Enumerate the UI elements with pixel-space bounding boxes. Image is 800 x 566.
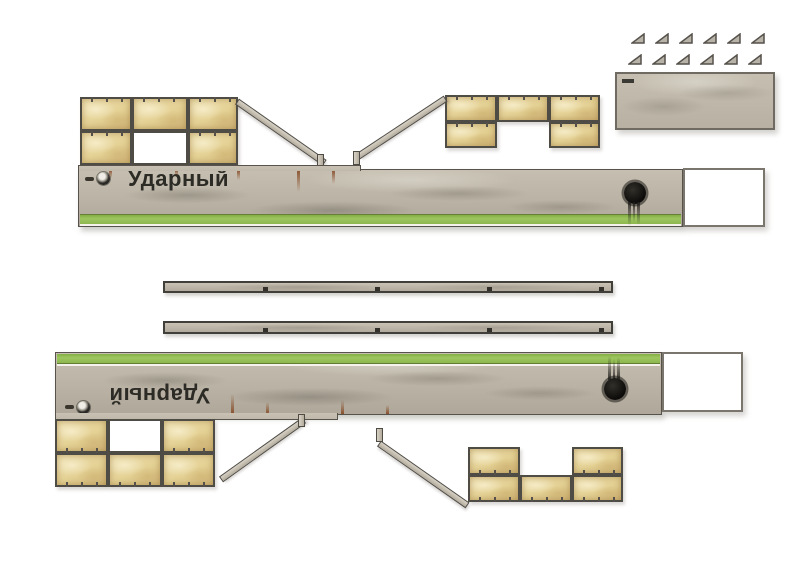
sandbag-panel (520, 475, 572, 502)
papercraft-sheet: Ударный Ударный (0, 0, 800, 566)
glue-tab (662, 352, 743, 412)
plate-mark (622, 79, 634, 83)
sandbag-panel (549, 122, 600, 148)
ramp-foot (298, 414, 305, 427)
vessel-name-label: Ударный (109, 382, 210, 408)
glue-triangle (751, 33, 765, 44)
hull-plate: Ударный (55, 352, 662, 415)
rust-streak (297, 170, 300, 192)
glue-triangle (700, 54, 714, 65)
rust-streak (386, 405, 389, 414)
ramp-strip-bottom-left (219, 417, 306, 482)
rust-streak (109, 170, 112, 178)
glue-triangle (703, 33, 717, 44)
sandbag-panel (572, 475, 623, 502)
sandbag-wall-top-left (80, 97, 238, 165)
sandbag-panel (132, 97, 188, 131)
drip-streak (628, 202, 631, 226)
sandbag-panel (188, 131, 238, 165)
sandbag-panel (55, 453, 108, 487)
waterline-stripe (80, 214, 681, 224)
ramp-foot (353, 151, 360, 165)
sandbag-panel (80, 131, 132, 165)
sandbag-panel (468, 447, 520, 475)
sandbag-panel-empty (108, 419, 162, 453)
sandbag-panel (468, 475, 520, 502)
sandbag-panel (445, 122, 497, 148)
sandbag-wall-top-right (445, 95, 600, 148)
rust-streak (341, 400, 344, 414)
hawse-hole (604, 378, 626, 400)
glue-tab (683, 168, 765, 227)
sandbag-panel (549, 95, 600, 122)
glue-triangle (679, 33, 693, 44)
runner-strip (163, 281, 613, 293)
ramp-strip-top-left (235, 99, 327, 166)
sandbag-panel (445, 95, 497, 122)
sandbag-panel (188, 97, 238, 131)
hawse-hole (624, 182, 646, 204)
grommet-dash (85, 177, 94, 181)
ramp-foot (376, 428, 383, 442)
glue-triangle (652, 54, 666, 65)
sandbag-panel (162, 453, 215, 487)
keel-line (57, 364, 660, 366)
glue-triangle (631, 33, 645, 44)
rust-streak (231, 394, 234, 414)
deck-plate (615, 72, 775, 130)
hull-plate: Ударный (78, 169, 683, 227)
sandbag-panel (55, 419, 108, 453)
rust-streak (237, 170, 240, 180)
sandbag-panel (497, 95, 549, 122)
keel-line (80, 224, 681, 227)
sandbag-panel (108, 453, 162, 487)
sandbag-panel (162, 419, 215, 453)
sandbag-wall-bottom-right (468, 447, 623, 502)
ramp-strip-top-right (356, 96, 447, 160)
sandbag-wall-bottom-left (55, 419, 215, 487)
glue-triangle (655, 33, 669, 44)
glue-triangle (676, 54, 690, 65)
sandbag-panel (572, 447, 623, 475)
drip-streak (608, 356, 611, 380)
waterline-stripe (57, 354, 660, 364)
rust-streak (332, 170, 335, 184)
drip-streak (633, 202, 635, 222)
glue-triangle (727, 33, 741, 44)
runner-strip (163, 321, 613, 334)
drip-streak (617, 357, 620, 380)
sandbag-panel (80, 97, 132, 131)
hull-step-edge (78, 165, 361, 171)
drip-streak (613, 359, 615, 380)
ramp-strip-bottom-right (377, 441, 469, 509)
glue-triangle (748, 54, 762, 65)
drip-streak (637, 202, 640, 225)
glue-triangle (628, 54, 642, 65)
grommet-dash (65, 405, 74, 409)
glue-triangle (724, 54, 738, 65)
sandbag-panel-empty (132, 131, 188, 165)
